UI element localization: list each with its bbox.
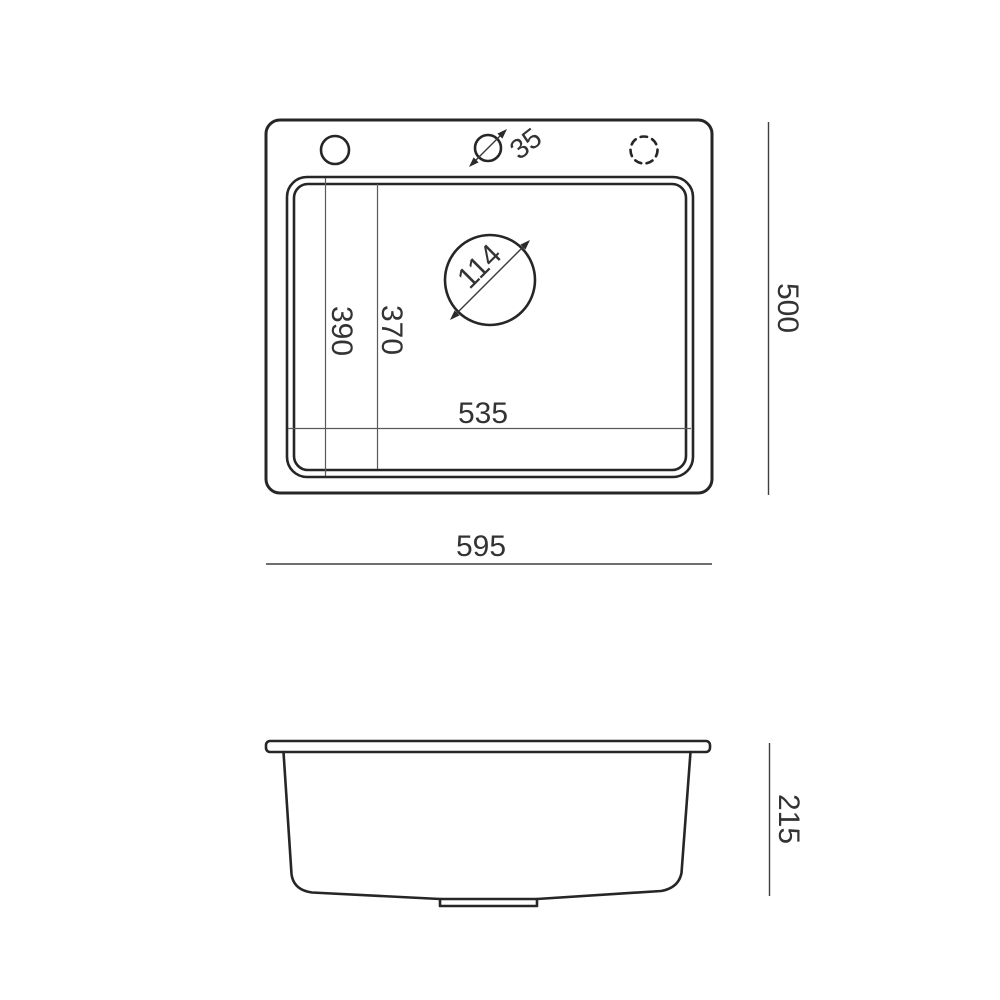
dim-label-inner-width: 535: [458, 399, 508, 429]
side-view-rim: [266, 741, 710, 752]
dim-label-overall-height: 215: [773, 794, 803, 844]
dim-label-overall-width: 595: [456, 532, 506, 562]
drawing-canvas: 35 114 390 370 535 595 500 215: [0, 0, 1000, 1000]
dim-label-inner-length-front: 370: [376, 305, 406, 355]
mounting-hole-left: [321, 136, 349, 164]
side-view-bowl-outline: [284, 752, 691, 899]
dim-label-inner-length-back: 390: [326, 306, 356, 356]
optional-hole-dashed: [631, 137, 658, 164]
dim-label-overall-depth: 500: [772, 283, 802, 333]
sink-linework: [0, 0, 1000, 1000]
side-view: [266, 741, 710, 906]
